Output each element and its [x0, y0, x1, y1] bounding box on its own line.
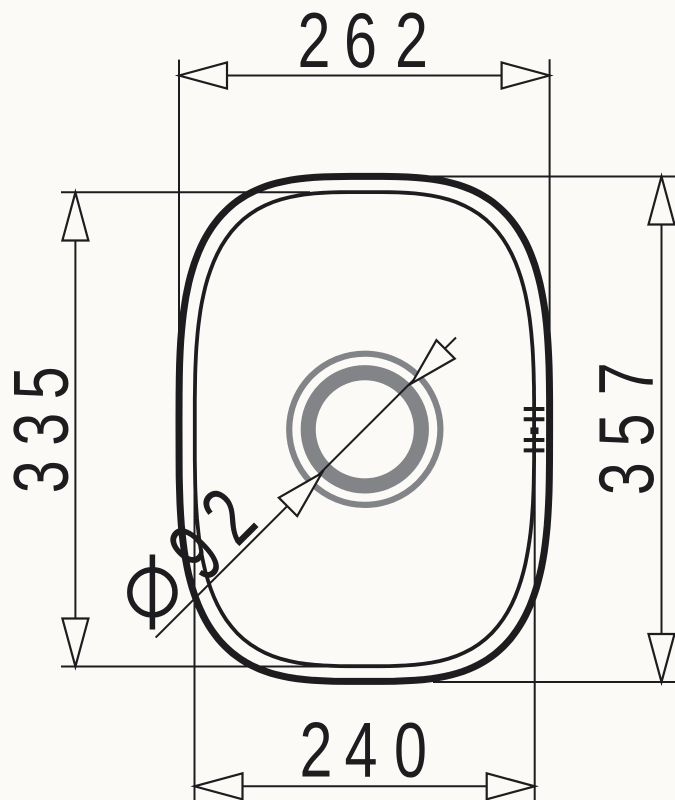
svg-text:3: 3 [582, 462, 670, 495]
svg-text:3: 3 [0, 460, 84, 493]
svg-text:2: 2 [300, 706, 333, 794]
svg-text:6: 6 [344, 0, 377, 84]
svg-text:5: 5 [582, 414, 670, 447]
svg-text:2: 2 [298, 0, 331, 84]
svg-text:2: 2 [395, 0, 428, 84]
svg-text:7: 7 [582, 362, 670, 395]
svg-text:4: 4 [345, 706, 378, 794]
svg-text:3: 3 [0, 413, 84, 446]
svg-text:0: 0 [394, 706, 427, 794]
svg-text:5: 5 [0, 366, 84, 399]
